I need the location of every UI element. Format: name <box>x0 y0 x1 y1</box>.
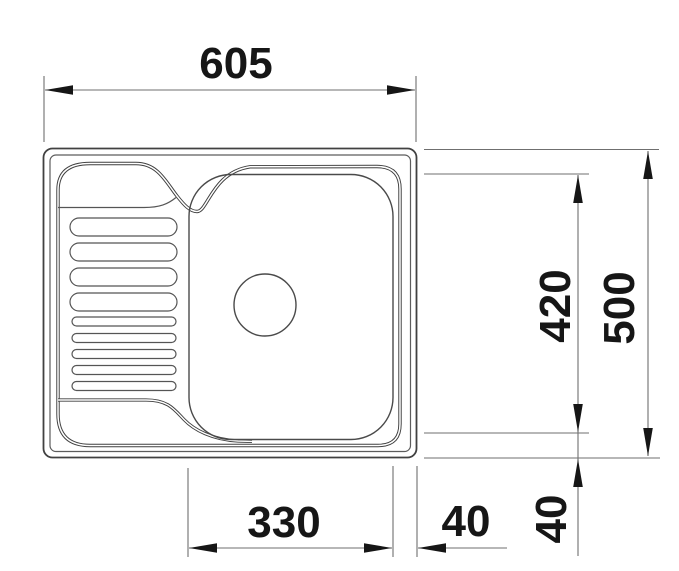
depression-contour <box>58 164 400 446</box>
rib-4 <box>70 293 177 311</box>
sink-plan-view <box>44 149 417 458</box>
rib-5 <box>72 317 176 326</box>
rib-1 <box>70 218 177 236</box>
dimension-label-605: 605 <box>199 39 272 88</box>
drainboard-fold-bottom <box>58 400 252 441</box>
sink-bowl <box>189 175 393 440</box>
arrowhead-right <box>387 85 415 95</box>
technical-drawing-page: 605 420 500 40 330 40 <box>0 0 679 571</box>
arrowhead-down <box>643 428 653 456</box>
dimension-bowl-offset-right: 40 <box>417 466 507 557</box>
arrowhead-left <box>189 543 217 553</box>
arrowhead-left <box>45 85 73 95</box>
dimension-overall-width: 605 <box>44 39 416 142</box>
sink-technical-drawing: 605 420 500 40 330 40 <box>0 0 679 571</box>
rib-9 <box>72 382 176 391</box>
rib-6 <box>72 334 176 343</box>
dimension-label-330: 330 <box>247 498 320 547</box>
dimension-bowl-offset-bottom: 40 <box>527 459 583 543</box>
dimension-label-40-vertical: 40 <box>527 495 576 544</box>
dimension-label-420: 420 <box>531 269 580 342</box>
arrowhead-down <box>573 404 583 432</box>
drainboard-ribs <box>70 218 177 391</box>
rib-8 <box>72 366 176 375</box>
sink-outer-edge <box>44 149 417 458</box>
rib-7 <box>72 350 176 359</box>
drainboard-fold-top <box>58 198 176 208</box>
dimension-label-500: 500 <box>595 271 644 344</box>
arrowhead-up <box>573 175 583 203</box>
arrowhead-up <box>643 151 653 179</box>
dimension-bowl-width: 330 <box>188 466 393 557</box>
drain-hole <box>234 274 296 336</box>
arrowhead-up <box>573 459 583 487</box>
rib-3 <box>70 268 177 286</box>
dimension-label-40-horizontal: 40 <box>442 497 491 546</box>
arrowhead-right <box>364 543 392 553</box>
sink-rim <box>50 155 411 452</box>
rib-2 <box>70 243 177 261</box>
